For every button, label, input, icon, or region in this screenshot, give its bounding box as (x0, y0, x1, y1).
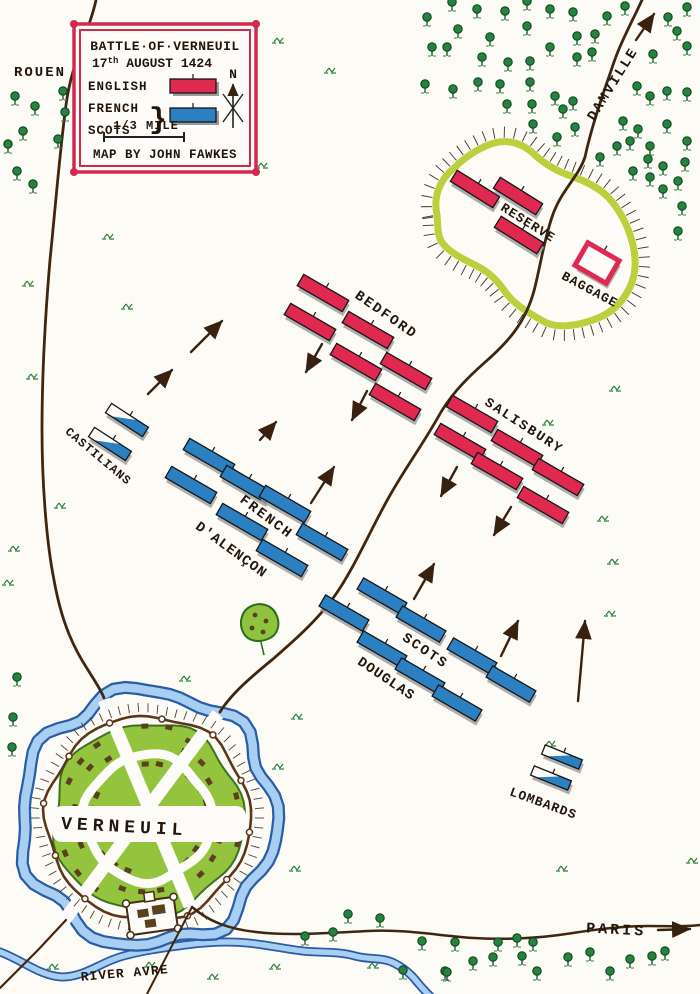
tree-canopy (473, 5, 481, 13)
castle-tower (127, 931, 135, 939)
tree-canopy (681, 158, 689, 166)
clump-dot (250, 626, 255, 631)
town-house (142, 761, 149, 766)
tree-canopy (494, 938, 502, 946)
tree-canopy (546, 5, 554, 13)
tree-canopy (603, 12, 611, 20)
tree-canopy (428, 43, 436, 51)
tree-canopy (451, 938, 459, 946)
tree-canopy (31, 102, 39, 110)
tree-canopy (646, 92, 654, 100)
tree-canopy (663, 87, 671, 95)
tree-canopy (454, 25, 462, 33)
wall-tower-icon (82, 896, 88, 902)
wall-tower-icon (66, 753, 72, 759)
wall-tower-icon (41, 800, 47, 806)
wall-tower-icon (224, 877, 230, 883)
tree-canopy (329, 928, 337, 936)
tree-canopy (596, 153, 604, 161)
wall-tower-icon (107, 720, 113, 726)
tree-canopy (571, 123, 579, 131)
date-rest: AUGUST 1424 (118, 56, 212, 71)
tree-canopy (486, 33, 494, 41)
tree-canopy (634, 125, 642, 133)
tree-canopy (553, 133, 561, 141)
town-house (141, 723, 148, 728)
date-ordinal: th (108, 56, 119, 66)
map-title: BATTLE·OF·VERNEUIL (90, 39, 239, 54)
tree-canopy (399, 966, 407, 974)
tree-canopy (528, 100, 536, 108)
tree-canopy (301, 932, 309, 940)
movement-arrow (658, 929, 690, 930)
castle-building (137, 908, 149, 917)
tree-canopy (546, 43, 554, 51)
tree-canopy (19, 127, 27, 135)
tree-canopy (591, 30, 599, 38)
enclosure-hachure (639, 257, 650, 258)
tree-canopy (496, 80, 504, 88)
tree-canopy (683, 42, 691, 50)
tree-canopy (569, 8, 577, 16)
tree-canopy (629, 167, 637, 175)
tree-canopy (606, 967, 614, 975)
tree-canopy (646, 142, 654, 150)
tree-canopy (559, 105, 567, 113)
tree-canopy (29, 180, 37, 188)
tree-canopy (59, 87, 67, 95)
tree-canopy (674, 177, 682, 185)
frame-knot-icon (70, 20, 78, 28)
tree-canopy (478, 53, 486, 61)
tree-canopy (423, 13, 431, 21)
tree-canopy (503, 100, 511, 108)
castle-building (152, 904, 166, 915)
tree-canopy (619, 117, 627, 125)
tree-canopy (673, 27, 681, 35)
castle-building (144, 919, 156, 928)
tree-canopy (573, 53, 581, 61)
tree-canopy (418, 937, 426, 945)
legend-english-label: ENGLISH (88, 80, 148, 94)
tree-canopy (683, 3, 691, 11)
castle-keep (126, 897, 178, 935)
enclosure-hachure (423, 225, 434, 226)
clump-dot (264, 619, 269, 624)
tree-canopy (526, 78, 534, 86)
tree-canopy (564, 953, 572, 961)
place-label-paris: PARIS (586, 920, 647, 940)
castle-turret (144, 892, 155, 902)
tree-canopy (8, 743, 16, 751)
scale-label: 1/3 MILE (113, 119, 179, 133)
tree-canopy (626, 137, 634, 145)
tree-canopy (504, 58, 512, 66)
tree-canopy (526, 57, 534, 65)
tree-canopy (644, 155, 652, 163)
frame-knot-icon (70, 168, 78, 176)
date-number: 17 (92, 56, 108, 71)
tree-canopy (646, 173, 654, 181)
place-label-rouen: ROUEN (14, 65, 66, 81)
tree-canopy (659, 185, 667, 193)
tree-canopy (421, 80, 429, 88)
tree-canopy (588, 48, 596, 56)
wall-tower-icon (238, 777, 244, 783)
tree-canopy (13, 673, 21, 681)
clump-canopy (241, 604, 278, 641)
frame-knot-icon (252, 168, 260, 176)
tree-canopy (443, 968, 451, 976)
clump-dot (253, 613, 258, 618)
wall-tower-icon (210, 732, 216, 738)
legend-box: BATTLE·OF·VERNEUIL 17th AUGUST 1424 ENGL… (70, 20, 260, 176)
tree-canopy (674, 227, 682, 235)
tree-canopy (551, 92, 559, 100)
tree-canopy (683, 137, 691, 145)
tree-canopy (573, 32, 581, 40)
wall-tower-icon (52, 852, 58, 858)
tree-canopy (683, 88, 691, 96)
tree-canopy (344, 910, 352, 918)
tree-canopy (664, 13, 672, 21)
tree-canopy (9, 713, 17, 721)
battle-map-of-verneuil: ROUENDAMVILLERESERVEBAGGAGEBEDFORDSALISB… (0, 0, 700, 994)
tree-canopy (449, 85, 457, 93)
tree-canopy (54, 135, 62, 143)
tree-canopy (663, 120, 671, 128)
tree-canopy (11, 92, 19, 100)
tree-canopy (648, 952, 656, 960)
tree-canopy (569, 97, 577, 105)
tree-canopy (533, 967, 541, 975)
tree-canopy (489, 953, 497, 961)
castle-tower (122, 900, 130, 908)
tree-canopy (4, 140, 12, 148)
tree-canopy (376, 914, 384, 922)
legend-french-label: FRENCH (88, 102, 139, 116)
tree-canopy (678, 202, 686, 210)
frame-knot-icon (252, 20, 260, 28)
tree-canopy (13, 167, 21, 175)
tree-canopy (649, 50, 657, 58)
clump-dot (261, 630, 266, 635)
tree-canopy (61, 108, 69, 116)
tree-canopy (529, 120, 537, 128)
tree-canopy (633, 82, 641, 90)
tree-canopy (586, 948, 594, 956)
tree-canopy (518, 952, 526, 960)
tree-canopy (448, 0, 456, 6)
legend-english-swatch (170, 79, 216, 93)
tree-canopy (469, 957, 477, 965)
tree-canopy (501, 7, 509, 15)
map-canvas: ROUENDAMVILLERESERVEBAGGAGEBEDFORDSALISB… (0, 0, 700, 994)
castle-tower (170, 893, 178, 901)
map-credit: MAP BY JOHN FAWKES (93, 148, 237, 162)
tree-canopy (523, 0, 531, 5)
tree-canopy (659, 162, 667, 170)
tree-canopy (513, 934, 521, 942)
tree-canopy (613, 142, 621, 150)
tree-canopy (626, 955, 634, 963)
wall-tower-icon (159, 716, 165, 722)
tree-canopy (443, 43, 451, 51)
tree-canopy (529, 938, 537, 946)
compass-north-label: N (229, 67, 237, 82)
tree-canopy (621, 2, 629, 10)
tree-canopy (474, 78, 482, 86)
tree-canopy (661, 947, 669, 955)
wall-tower-icon (246, 829, 252, 835)
tree-canopy (523, 22, 531, 30)
